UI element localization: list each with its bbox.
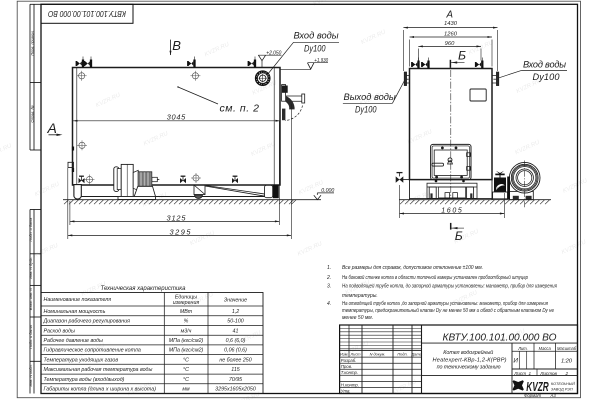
svg-text:Масса: Масса [539,346,552,351]
svg-text:50-100: 50-100 [227,319,244,325]
svg-text:°С: °С [183,377,189,383]
svg-text:+2.050: +2.050 [266,51,281,57]
svg-text:Все размеры для справок, допус: Все размеры для справок, допустимое откл… [342,265,483,271]
svg-text:см. п. 2: см. п. 2 [220,103,260,115]
svg-text:960: 960 [445,41,455,47]
svg-text:А: А [446,9,453,20]
svg-text:1430: 1430 [444,21,458,27]
svg-text:KVZR.RU: KVZR.RU [407,129,434,146]
svg-text:%: % [184,319,189,325]
svg-text:N докум.: N докум. [370,352,386,357]
svg-text:KVZR.RU: KVZR.RU [34,181,61,198]
svg-text:измерения: измерения [173,300,200,306]
svg-text:Инв. N подл.: Инв. N подл. [29,364,33,386]
svg-text:В: В [172,38,181,53]
svg-text:А: А [47,120,57,136]
svg-text:температуры.: температуры. [342,293,378,299]
svg-text:КОТЕЛЬНЫЙ: КОТЕЛЬНЫЙ [551,382,575,386]
svg-text:Утв.: Утв. [341,388,351,393]
svg-text:Котел водогрейный: Котел водогрейный [443,349,493,356]
svg-text:Значение: Значение [224,298,247,304]
svg-text:2: 2 [565,371,569,376]
svg-text:KVZR.RU: KVZR.RU [0,143,13,160]
svg-text:Dy100: Dy100 [355,105,377,115]
svg-text:KVZR.RU: KVZR.RU [468,40,495,57]
svg-text:КВТУ.100.101.00.000 ВО: КВТУ.100.101.00.000 ВО [48,9,126,19]
svg-text:KVZR.RU: KVZR.RU [204,41,231,58]
svg-text:Изм.: Изм. [340,352,348,357]
svg-text:1:20: 1:20 [561,359,573,365]
svg-text:KVZR.RU: KVZR.RU [561,239,588,256]
svg-text:KVZR.RU: KVZR.RU [562,178,589,195]
svg-text:Масштаб: Масштаб [557,346,577,351]
svg-text:3295х1605х2050: 3295х1605х2050 [215,387,256,393]
svg-text:70/95: 70/95 [229,377,242,383]
svg-text:Максимальная рабочая температу: Максимальная рабочая температура воды [44,367,153,373]
svg-text:м3/ч: м3/ч [181,328,192,334]
svg-text:На подводящей трубе котла, до: На подводящей трубе котла, до запорной а… [342,283,557,290]
svg-text:А3: А3 [550,393,557,398]
svg-text:3.: 3. [327,284,331,290]
svg-text:Heatexpert-КВр-1,2-К(РВР): Heatexpert-КВр-1,2-К(РВР) [433,358,507,364]
svg-text:115: 115 [231,367,239,373]
svg-text:KVZR.RU: KVZR.RU [514,139,541,156]
svg-text:Взам. инв. N: Взам. инв. N [29,288,33,310]
svg-text:Лист: Лист [513,371,526,376]
svg-text:по техническому заданию: по техническому заданию [437,365,501,371]
svg-text:Dy100: Dy100 [533,72,561,82]
svg-text:KVZR.RU: KVZR.RU [360,29,387,46]
svg-text:°С: °С [183,357,189,363]
svg-text:Разраб.: Разраб. [341,358,357,363]
svg-text:МВт: МВт [180,309,193,315]
svg-text:1605: 1605 [441,207,462,214]
svg-text:МПа (кгс/см2): МПа (кгс/см2) [169,348,204,354]
svg-text:0,6 (6,0): 0,6 (6,0) [226,338,246,344]
svg-text:°С: °С [183,367,189,373]
svg-text:Гидравлическое сопротивление к: Гидравлическое сопротивление котла [44,348,141,354]
svg-text:Выход воды: Выход воды [344,92,396,102]
svg-text:Температура уходящих газов: Температура уходящих газов [44,357,119,363]
svg-text:KVZR.RU: KVZR.RU [297,241,324,258]
svg-text:МПа (кгс/см2): МПа (кгс/см2) [169,338,204,344]
svg-text:Расход воды: Расход воды [44,328,75,334]
svg-text:На боковой стенке котла в обла: На боковой стенке котла в области топочн… [342,274,528,281]
svg-text:3045: 3045 [167,112,186,121]
svg-text:Рабочее давление воды: Рабочее давление воды [44,338,103,344]
svg-text:3295: 3295 [170,228,192,237]
svg-text:Справ. №: Справ. № [30,105,34,122]
svg-text:мм: мм [182,387,190,393]
svg-text:41: 41 [233,328,239,334]
svg-text:Вход воды: Вход воды [523,60,566,70]
svg-text:ЗАВОД РЭП: ЗАВОД РЭП [551,387,573,391]
svg-text:Формат: Формат [524,393,541,398]
svg-text:не более 250: не более 250 [219,357,251,363]
svg-text:Лит.: Лит. [517,346,528,351]
svg-text:Б: Б [455,229,463,243]
svg-text:температуры, предохранительный: температуры, предохранительный клапан Dy… [342,307,554,314]
svg-text:KVZR.RU: KVZR.RU [189,230,216,247]
svg-text:KVZR.RU: KVZR.RU [250,141,277,158]
svg-text:Т.контр.: Т.контр. [341,370,358,375]
svg-text:Номинальная мощность: Номинальная мощность [44,309,106,315]
svg-text:1.: 1. [327,265,331,271]
svg-text:менее 50 мм.: менее 50 мм. [342,315,373,321]
svg-text:Н.контр.: Н.контр. [341,382,359,387]
svg-text:Подп.: Подп. [397,352,407,357]
svg-text:0,06 (0,6): 0,06 (0,6) [224,348,247,354]
svg-text:+1.930: +1.930 [314,58,328,64]
svg-text:3125: 3125 [167,214,187,223]
svg-text:Габариты котла (длина х ширина: Габариты котла (длина х ширина х высота) [44,387,157,393]
svg-text:Лист: Лист [349,352,361,357]
svg-text:Подп. и дата: Подп. и дата [29,218,33,242]
svg-text:Наименование показателя: Наименование показателя [44,297,112,303]
svg-text:KVZR.RU: KVZR.RU [95,92,122,109]
svg-text:Подп. и дата: Подп. и дата [29,325,33,349]
svg-text:КВТУ.100.101.00.000 ВО: КВТУ.100.101.00.000 ВО [443,332,557,343]
svg-text:Листов: Листов [539,371,557,376]
svg-text:1,2: 1,2 [232,309,239,315]
svg-text:Dy100: Dy100 [304,44,326,54]
svg-text:Инв. N дубл.: Инв. N дубл. [29,257,33,279]
svg-text:Температура воды (вход/выход): Температура воды (вход/выход) [44,377,125,383]
svg-text:И: И [513,358,518,365]
svg-text:Перв. примен.: Перв. примен. [30,30,34,55]
svg-text:KVZR.RU: KVZR.RU [143,131,170,148]
svg-text:1: 1 [529,371,532,376]
svg-text:KVZR: KVZR [526,379,549,394]
svg-text:Вход воды: Вход воды [294,31,339,41]
svg-text:4.: 4. [327,301,331,307]
svg-text:Пров.: Пров. [341,364,352,369]
svg-text:1260: 1260 [444,32,458,38]
svg-text:Диапазон рабочего регулировани: Диапазон рабочего регулирования [43,319,131,325]
svg-text:2.: 2. [326,275,331,281]
svg-text:Дата: Дата [411,352,423,357]
svg-text:KVZR.RU: KVZR.RU [33,243,60,260]
svg-text:На отводящей трубе котла ,до з: На отводящей трубе котла ,до запорной ар… [342,300,548,307]
svg-text:Техническая характеристика: Техническая характеристика [101,286,187,292]
svg-text:Б: Б [458,49,466,63]
